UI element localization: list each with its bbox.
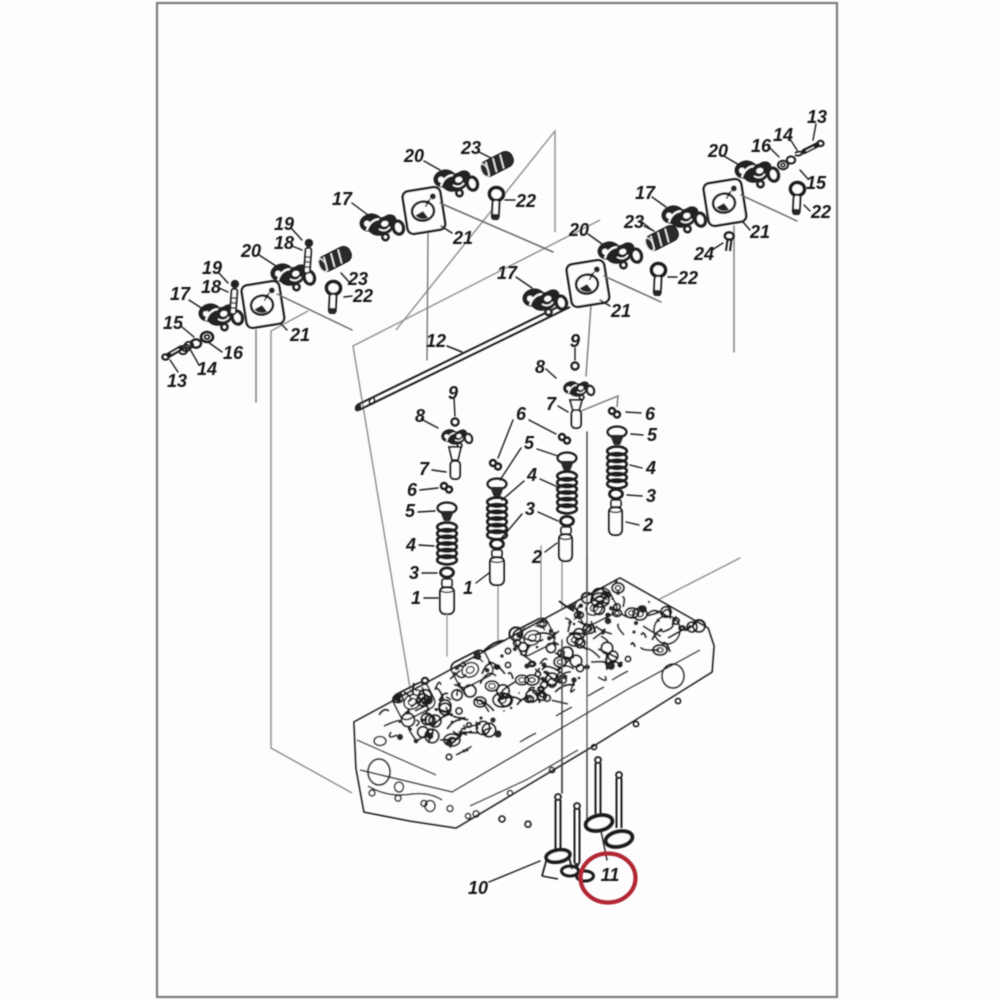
svg-text:21: 21 xyxy=(610,301,631,321)
svg-text:23: 23 xyxy=(623,212,644,232)
svg-text:17: 17 xyxy=(170,284,191,304)
svg-text:6: 6 xyxy=(407,480,418,500)
svg-text:23: 23 xyxy=(460,138,481,158)
svg-text:9: 9 xyxy=(448,383,458,403)
svg-text:20: 20 xyxy=(240,241,261,261)
svg-text:3: 3 xyxy=(646,486,656,506)
svg-text:7: 7 xyxy=(546,394,557,414)
svg-text:9: 9 xyxy=(570,331,580,351)
svg-text:6: 6 xyxy=(516,404,527,424)
svg-text:5: 5 xyxy=(524,433,535,453)
svg-text:14: 14 xyxy=(197,359,217,379)
svg-text:24: 24 xyxy=(693,244,714,264)
svg-text:14: 14 xyxy=(773,125,793,145)
svg-text:15: 15 xyxy=(163,313,184,333)
svg-text:22: 22 xyxy=(677,268,698,288)
svg-text:11: 11 xyxy=(601,865,620,885)
svg-text:19: 19 xyxy=(202,258,222,278)
svg-text:3: 3 xyxy=(525,499,535,519)
svg-text:22: 22 xyxy=(810,202,831,222)
svg-text:22: 22 xyxy=(352,286,373,306)
svg-text:1: 1 xyxy=(411,588,421,608)
svg-text:13: 13 xyxy=(807,107,827,127)
svg-text:17: 17 xyxy=(332,189,353,209)
svg-text:10: 10 xyxy=(468,878,488,898)
svg-text:4: 4 xyxy=(405,535,416,555)
svg-text:1: 1 xyxy=(463,578,473,598)
svg-text:15: 15 xyxy=(806,173,827,193)
svg-text:2: 2 xyxy=(642,515,653,535)
svg-text:17: 17 xyxy=(635,183,656,203)
svg-text:20: 20 xyxy=(403,146,424,166)
svg-text:5: 5 xyxy=(405,501,416,521)
svg-text:2: 2 xyxy=(531,547,542,567)
svg-text:16: 16 xyxy=(223,343,244,363)
svg-text:8: 8 xyxy=(535,357,545,377)
svg-text:17: 17 xyxy=(497,263,518,283)
svg-text:18: 18 xyxy=(274,233,294,253)
svg-text:19: 19 xyxy=(274,214,294,234)
svg-text:4: 4 xyxy=(526,465,537,485)
svg-text:21: 21 xyxy=(452,228,473,248)
svg-text:20: 20 xyxy=(568,220,589,240)
svg-text:22: 22 xyxy=(515,191,536,211)
svg-text:13: 13 xyxy=(167,371,187,391)
svg-text:12: 12 xyxy=(426,331,446,351)
svg-text:18: 18 xyxy=(201,277,221,297)
svg-text:7: 7 xyxy=(419,459,430,479)
svg-text:16: 16 xyxy=(751,136,772,156)
svg-text:20: 20 xyxy=(707,141,728,161)
svg-text:3: 3 xyxy=(409,563,419,583)
svg-text:4: 4 xyxy=(645,458,656,478)
svg-text:21: 21 xyxy=(289,325,310,345)
svg-text:21: 21 xyxy=(749,222,770,242)
svg-text:8: 8 xyxy=(415,406,425,426)
svg-text:5: 5 xyxy=(647,425,658,445)
svg-text:6: 6 xyxy=(645,404,656,424)
